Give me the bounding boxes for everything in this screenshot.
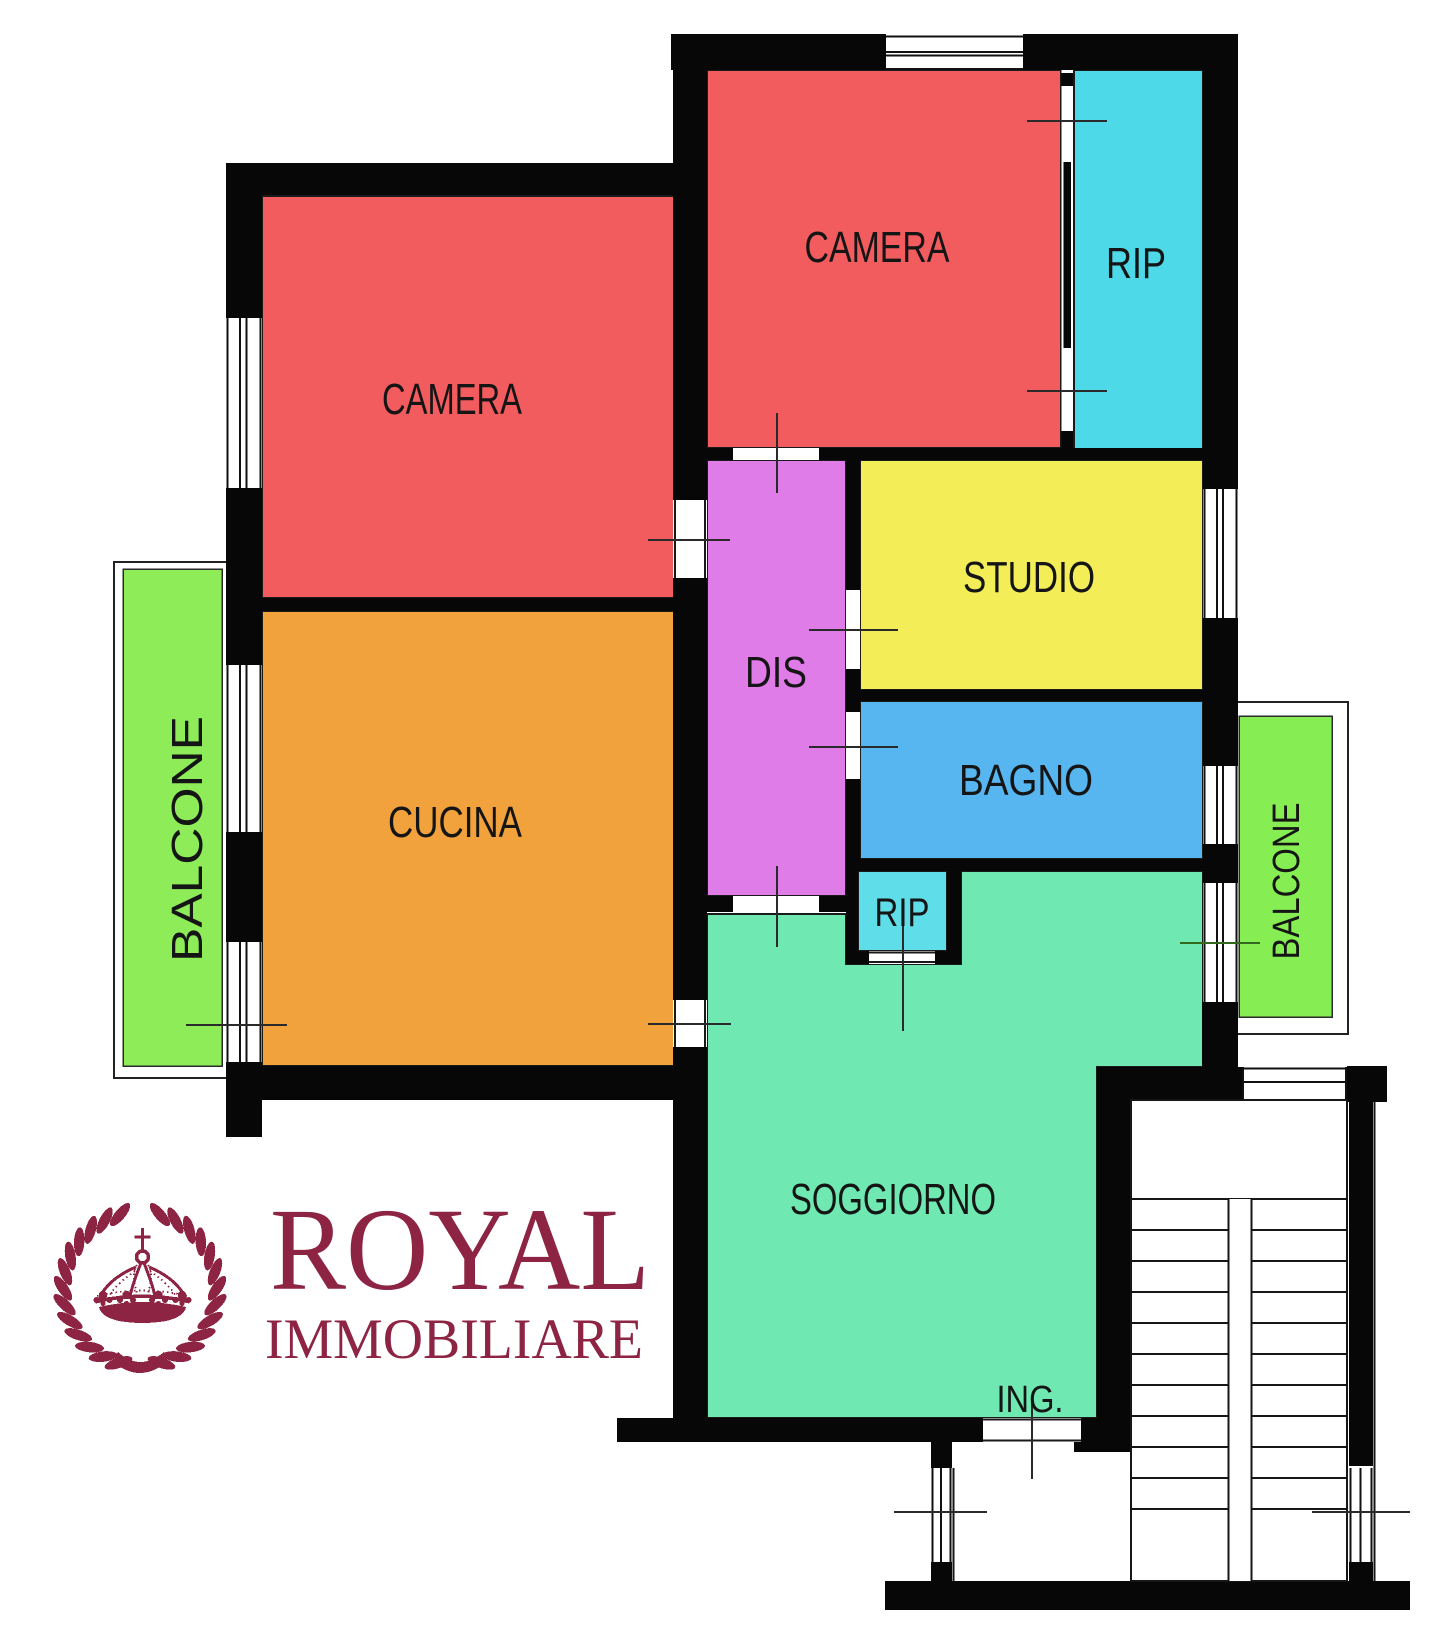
svg-text:SOGGIORNO: SOGGIORNO [790, 1175, 996, 1224]
svg-text:IMMOBILIARE: IMMOBILIARE [265, 1308, 643, 1371]
svg-text:RIP: RIP [1106, 239, 1166, 288]
svg-text:ROYAL: ROYAL [270, 1184, 650, 1315]
svg-text:RIP: RIP [875, 891, 930, 935]
svg-text:ING.: ING. [997, 1379, 1064, 1421]
svg-text:BALCONE: BALCONE [163, 716, 212, 962]
svg-text:DIS: DIS [745, 648, 807, 697]
svg-text:STUDIO: STUDIO [963, 553, 1095, 602]
svg-text:BAGNO: BAGNO [959, 756, 1093, 805]
svg-text:BALCONE: BALCONE [1266, 803, 1308, 960]
svg-text:CAMERA: CAMERA [805, 223, 950, 272]
svg-text:CUCINA: CUCINA [388, 798, 523, 847]
svg-text:CAMERA: CAMERA [382, 375, 522, 424]
